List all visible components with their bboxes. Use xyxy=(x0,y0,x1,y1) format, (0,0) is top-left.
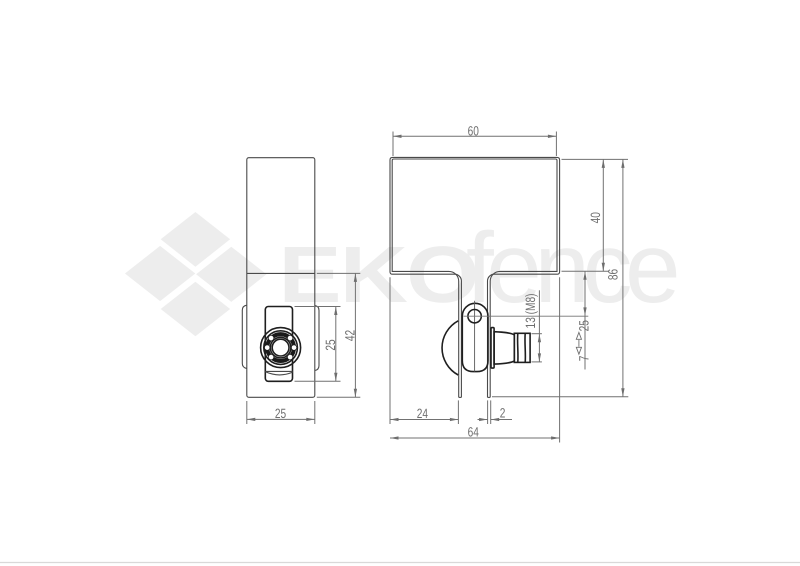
svg-text:60: 60 xyxy=(468,123,479,138)
svg-text:13 (M8): 13 (M8) xyxy=(523,294,538,329)
svg-text:25: 25 xyxy=(577,320,592,331)
svg-text:40: 40 xyxy=(588,212,603,223)
svg-text:fence: fence xyxy=(466,212,677,324)
svg-text:25: 25 xyxy=(323,339,338,350)
svg-text:42: 42 xyxy=(342,330,357,341)
svg-text:86: 86 xyxy=(606,269,621,280)
svg-text:2: 2 xyxy=(500,406,506,421)
svg-text:64: 64 xyxy=(468,425,480,440)
svg-text:7: 7 xyxy=(577,356,592,362)
svg-text:25: 25 xyxy=(275,406,286,421)
svg-text:24: 24 xyxy=(417,406,429,421)
